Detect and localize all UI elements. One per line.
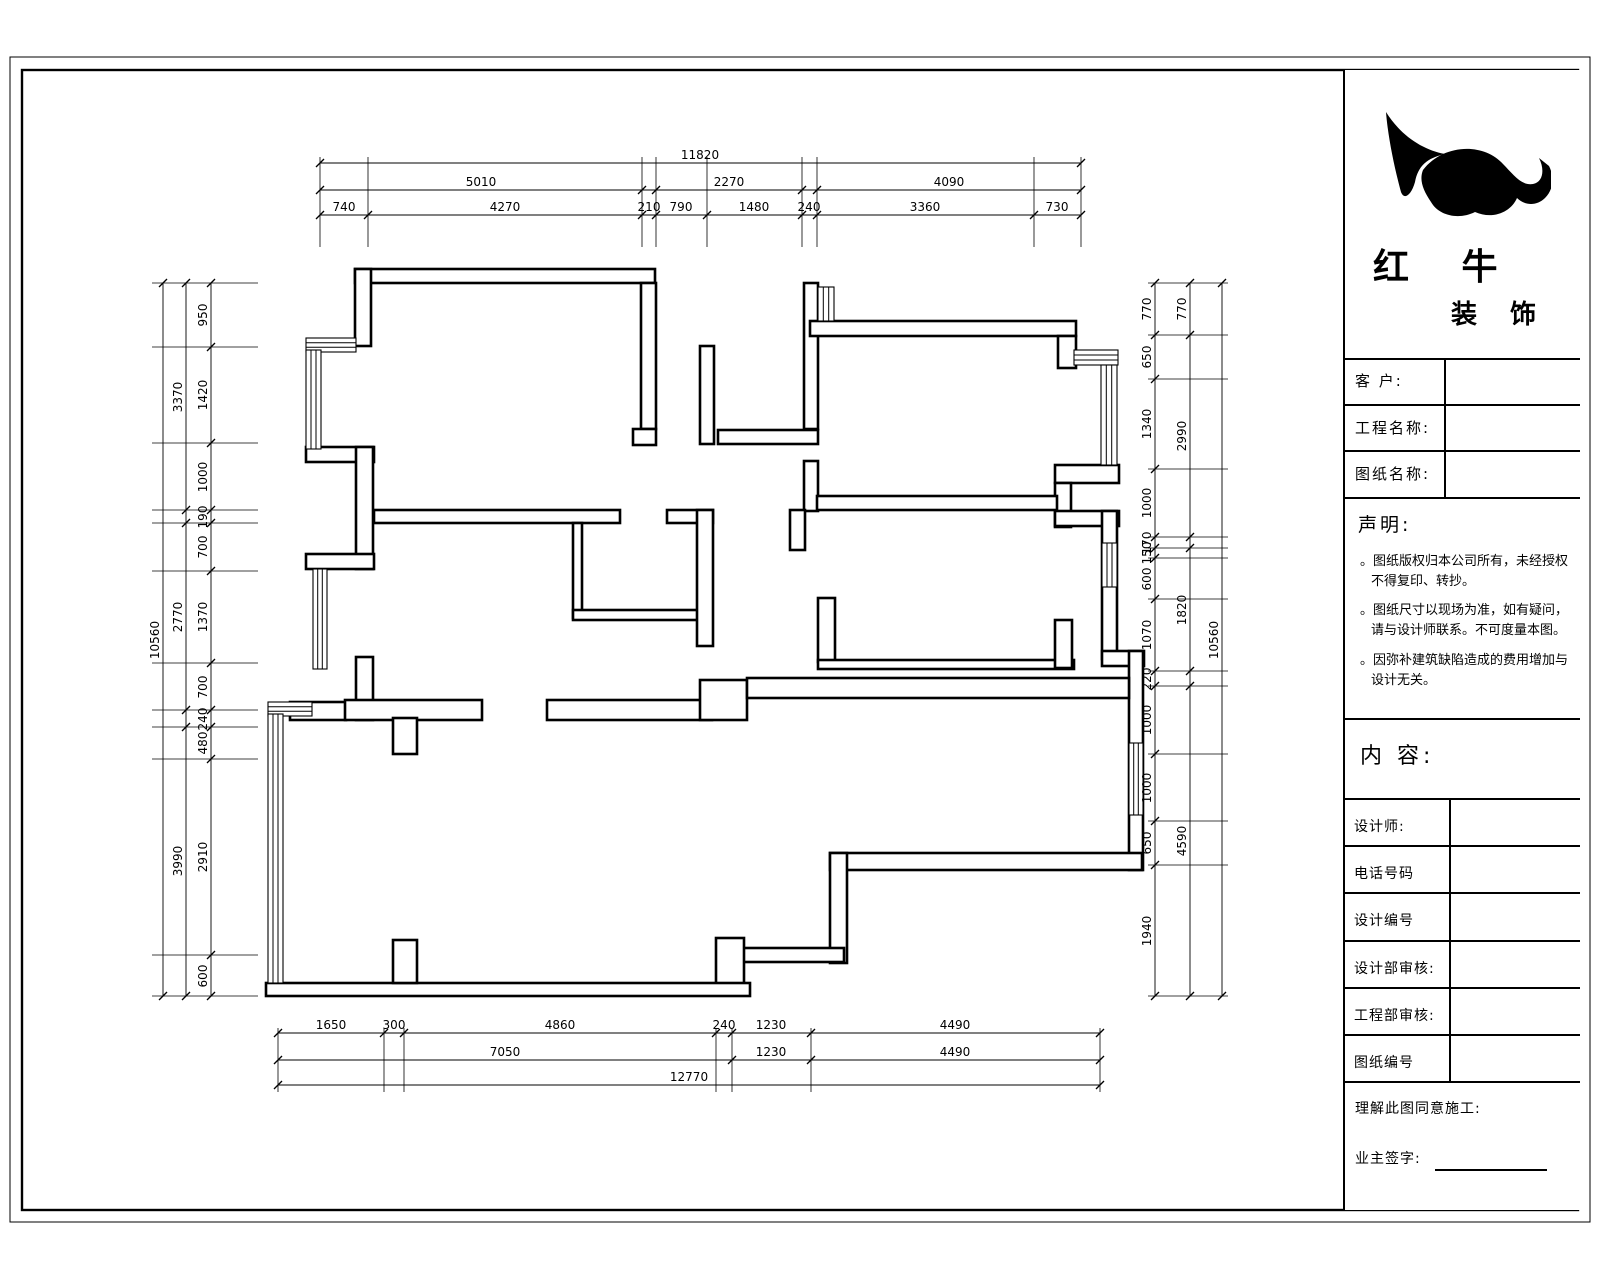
divider <box>1449 798 1451 1081</box>
dimension-label: 10560 <box>1207 621 1221 659</box>
row-label-engineering-dept-review: 工程部审核: <box>1354 1005 1435 1025</box>
dimension-label: 210 <box>638 200 661 214</box>
dimension-label: 740 <box>333 200 356 214</box>
divider <box>1345 497 1580 499</box>
dimension-label: 1940 <box>1140 916 1154 947</box>
field-label-project-name: 工程名称: <box>1355 417 1430 438</box>
divider <box>1444 358 1446 497</box>
dimension-label: 3370 <box>171 382 185 413</box>
window-icon <box>818 287 834 321</box>
row-label-design-dept-review: 设计部审核: <box>1354 958 1435 978</box>
window-icon <box>313 569 327 669</box>
window-icon <box>1074 350 1118 365</box>
dimension-label: 4490 <box>940 1018 971 1032</box>
dimension-label: 1070 <box>1140 620 1154 651</box>
row-label-drawing-no: 图纸编号 <box>1354 1052 1414 1072</box>
divider <box>1345 358 1580 360</box>
dimension-label: 2270 <box>714 175 745 189</box>
dimension-label: 1480 <box>739 200 770 214</box>
divider <box>1345 1081 1580 1083</box>
dimension-label: 700 <box>196 536 210 559</box>
window-icon <box>1102 543 1117 587</box>
dimension-label: 7050 <box>490 1045 521 1059</box>
divider <box>1345 450 1580 452</box>
dimension-label: 2990 <box>1175 421 1189 452</box>
dimension-label: 10560 <box>148 621 162 659</box>
statement-item: 。图纸版权归本公司所有，未经授权不得复印、转抄。 <box>1358 552 1570 592</box>
divider <box>1345 798 1580 800</box>
company-name-suffix: 装 饰 <box>1451 294 1548 331</box>
field-label-drawing-name: 图纸名称: <box>1355 463 1430 484</box>
dimension-label: 4270 <box>490 200 521 214</box>
statement-title: 声明: <box>1358 510 1411 537</box>
divider <box>1345 892 1580 894</box>
footer-agreement-text: 理解此图同意施工: <box>1355 1098 1481 1118</box>
dimension-label: 790 <box>670 200 693 214</box>
divider <box>1345 404 1580 406</box>
dimension-label: 150 <box>1140 542 1154 565</box>
dimension-label: 2770 <box>171 602 185 633</box>
dimension-label: 950 <box>196 304 210 327</box>
signature-underline <box>1435 1169 1547 1171</box>
window-icon <box>1101 365 1117 465</box>
dimension-label: 4090 <box>934 175 965 189</box>
company-logo-icon <box>1371 108 1551 228</box>
dimension-label: 1340 <box>1140 409 1154 440</box>
dimension-label: 1650 <box>316 1018 347 1032</box>
dimension-label: 600 <box>196 965 210 988</box>
row-label-phone: 电话号码 <box>1354 863 1414 883</box>
divider <box>1345 1034 1580 1036</box>
dimension-label: 12770 <box>670 1070 708 1084</box>
dimension-label: 190 <box>196 506 210 529</box>
dimension-label: 1000 <box>1140 773 1154 804</box>
company-name: 红 牛 <box>1373 238 1518 290</box>
dimension-label: 3360 <box>910 200 941 214</box>
dimension-label: 1000 <box>1140 705 1154 736</box>
dimension-label: 600 <box>1140 568 1154 591</box>
dimension-label: 730 <box>1046 200 1069 214</box>
window-icon <box>306 350 321 449</box>
title-block: 红 牛 装 饰 客 户: 工程名称: 图纸名称: 声明: 。图纸版权归本公司所有… <box>1343 70 1580 1210</box>
wall-segments <box>266 269 1144 996</box>
drawing-sheet: 1182050102270409074042702107901480240336… <box>0 0 1600 1280</box>
dimension-label: 1230 <box>756 1045 787 1059</box>
divider <box>1345 845 1580 847</box>
dimension-label: 700 <box>196 676 210 699</box>
dimension-label: 2910 <box>196 842 210 873</box>
dimension-label: 4860 <box>545 1018 576 1032</box>
window-icon <box>268 714 283 983</box>
dimension-label: 1420 <box>196 380 210 411</box>
dimension-label: 300 <box>383 1018 406 1032</box>
divider <box>1345 987 1580 989</box>
dimension-label: 1000 <box>196 462 210 493</box>
dimension-label: 480 <box>196 732 210 755</box>
statement-item: 。图纸尺寸以现场为准，如有疑问，请与设计师联系。不可度量本图。 <box>1358 601 1570 641</box>
dimension-label: 650 <box>1140 346 1154 369</box>
dimension-label: 770 <box>1175 298 1189 321</box>
dimension-label: 770 <box>1140 298 1154 321</box>
divider <box>1345 718 1580 720</box>
statement-item: 。因弥补建筑缺陷造成的费用增加与设计无关。 <box>1358 651 1570 691</box>
dimension-label: 3990 <box>171 846 185 877</box>
statement-body: 。图纸版权归本公司所有，未经授权不得复印、转抄。 。图纸尺寸以现场为准，如有疑问… <box>1358 552 1570 700</box>
field-label-client: 客 户: <box>1355 370 1403 391</box>
dimension-label: 650 <box>1140 832 1154 855</box>
content-label: 内 容: <box>1360 738 1434 770</box>
row-label-designer: 设计师: <box>1354 816 1405 836</box>
footer-owner-signature-label: 业主签字: <box>1355 1148 1421 1168</box>
dimension-label: 5010 <box>466 175 497 189</box>
row-label-design-no: 设计编号 <box>1354 910 1414 930</box>
dimension-label: 1230 <box>756 1018 787 1032</box>
dimension-label: 1000 <box>1140 488 1154 519</box>
dimension-label: 4590 <box>1175 826 1189 857</box>
dimension-label: 4490 <box>940 1045 971 1059</box>
dimension-label: 1370 <box>196 602 210 633</box>
divider <box>1345 940 1580 942</box>
dimension-label: 11820 <box>681 148 719 162</box>
